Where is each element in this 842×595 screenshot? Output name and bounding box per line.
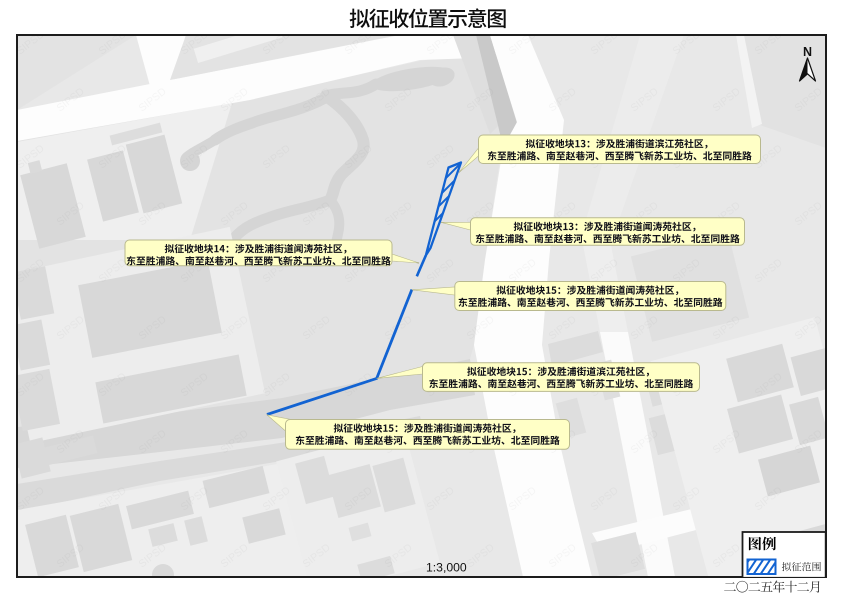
svg-text:1:3,000: 1:3,000 [426,561,467,575]
svg-text:N: N [803,45,812,59]
